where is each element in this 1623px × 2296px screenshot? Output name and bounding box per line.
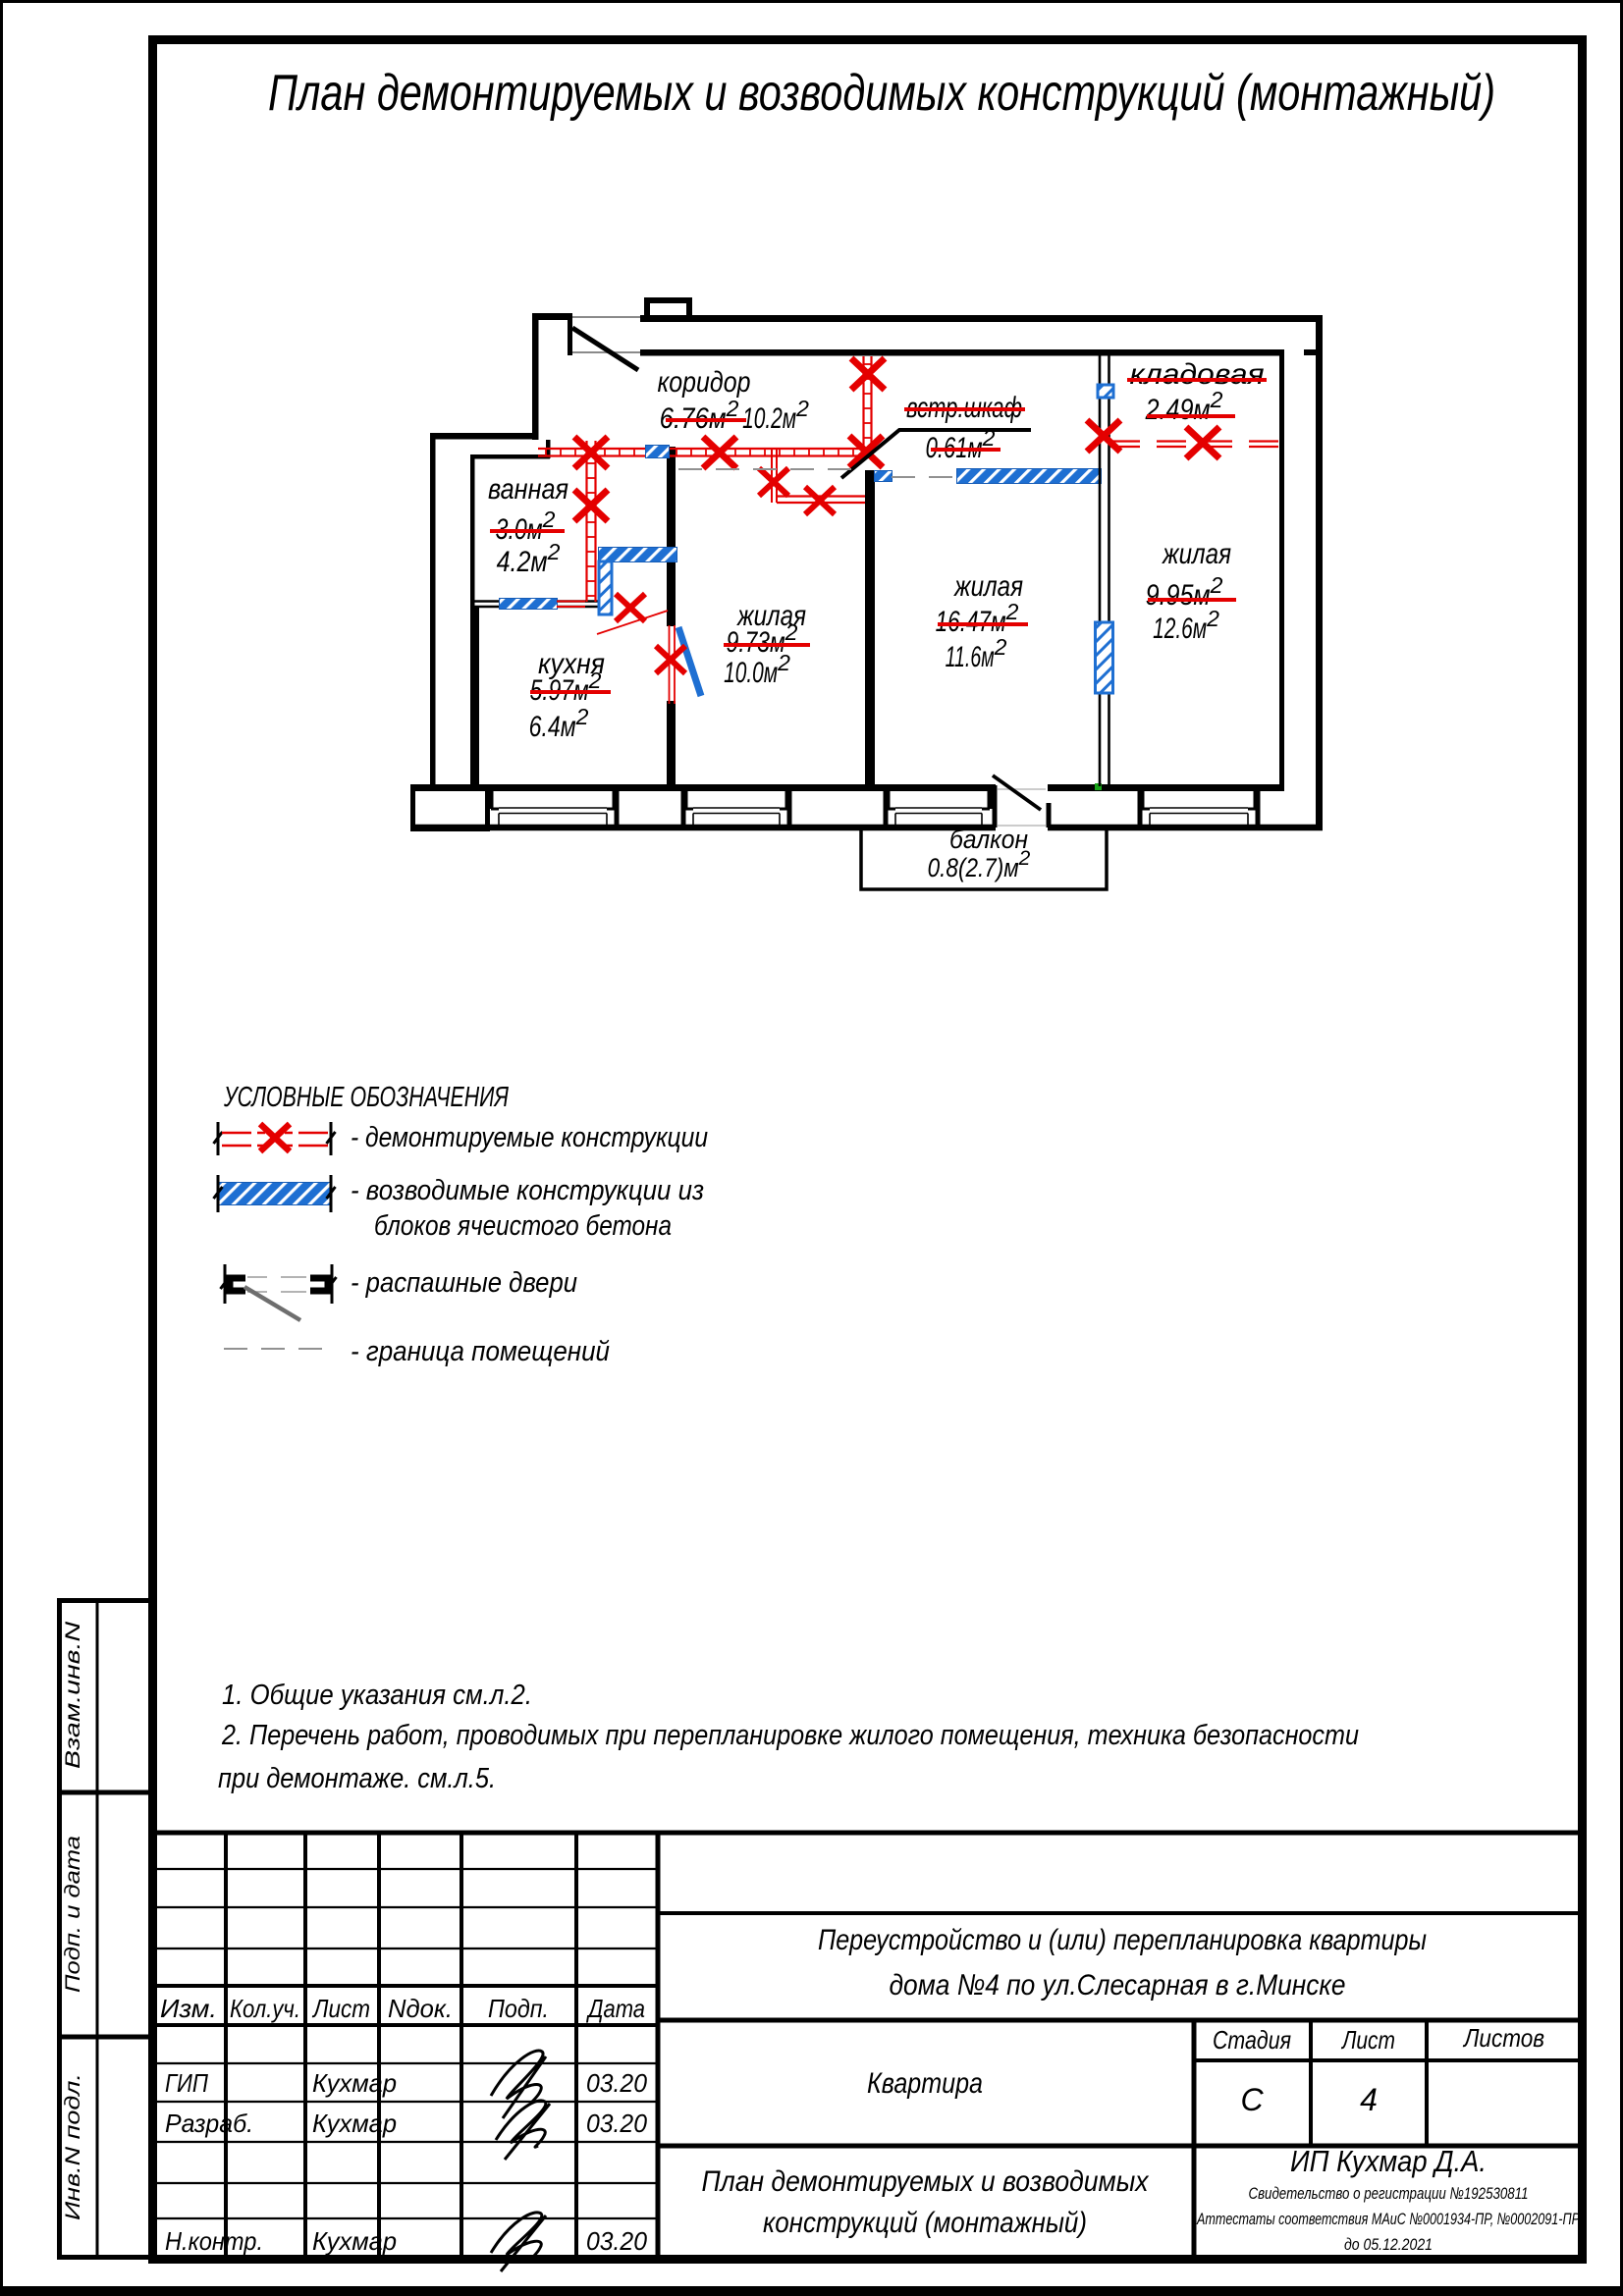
- svg-text:Nдок.: Nдок.: [388, 1994, 453, 2023]
- svg-text:03.20: 03.20: [586, 2109, 648, 2138]
- svg-text:Взам.инв.N: Взам.инв.N: [62, 1621, 84, 1769]
- svg-text:Дата: Дата: [585, 1994, 645, 2023]
- svg-text:План демонтируемых и возвод: План демонтируемых и возводимых конструк…: [268, 65, 1495, 122]
- svg-text:Разраб.: Разраб.: [165, 2109, 253, 2138]
- svg-text:- распашные двери: - распашные двери: [351, 1267, 577, 1299]
- svg-text:Кол.уч.: Кол.уч.: [230, 1994, 300, 2023]
- svg-text:2. Перечень работ, проводим: 2. Перечень работ, проводимых при перепл…: [221, 1720, 1359, 1751]
- svg-text:ГИП: ГИП: [165, 2068, 208, 2098]
- svg-text:Подп. и дата: Подп. и дата: [62, 1836, 84, 1993]
- svg-text:Кухмар: Кухмар: [312, 2068, 397, 2098]
- svg-text:Свидетельство о регистрации №1: Свидетельство о регистрации №192530811: [1249, 2184, 1529, 2203]
- svg-text:Подп.: Подп.: [488, 1994, 549, 2023]
- svg-text:ванная: ванная: [488, 473, 568, 506]
- svg-text:Переустройство и (или) пере: Переустройство и (или) перепланировка кв…: [818, 1924, 1427, 1956]
- svg-text:дома №4 по ул.Слесарная в: дома №4 по ул.Слесарная в г.Минске: [890, 1969, 1346, 2002]
- svg-text:0.8(2.7)м2: 0.8(2.7)м2: [928, 847, 1031, 882]
- svg-text:Листов: Листов: [1462, 2023, 1544, 2053]
- svg-text:03.20: 03.20: [586, 2068, 648, 2098]
- svg-text:конструкций (монтажный): конструкций (монтажный): [763, 2207, 1087, 2239]
- svg-text:Кухмар: Кухмар: [312, 2109, 397, 2138]
- svg-text:Кухмар: Кухмар: [312, 2226, 397, 2256]
- svg-text:Лист: Лист: [311, 1994, 370, 2023]
- svg-text:Аттестаты соответствия МАиС №: Аттестаты соответствия МАиС №0001934-ПР,…: [1196, 2210, 1580, 2228]
- svg-text:при демонтаже. см.л.5.: при демонтаже. см.л.5.: [218, 1763, 496, 1794]
- svg-text:- возводимые конструкции из: - возводимые конструкции из: [351, 1175, 704, 1206]
- svg-text:Изм.: Изм.: [160, 1994, 217, 2023]
- svg-text:С: С: [1240, 2082, 1264, 2117]
- svg-text:Инв.N подл.: Инв.N подл.: [62, 2073, 84, 2220]
- svg-text:балкон: балкон: [949, 825, 1028, 854]
- svg-text:Стадия: Стадия: [1213, 2025, 1291, 2055]
- svg-text:Н.контр.: Н.контр.: [165, 2226, 263, 2256]
- svg-text:Лист: Лист: [1340, 2025, 1395, 2055]
- svg-text:УСЛОВНЫЕ ОБОЗНАЧЕНИЯ: УСЛОВНЫЕ ОБОЗНАЧЕНИЯ: [223, 1082, 509, 1113]
- svg-text:План демонтируемых и возвод: План демонтируемых и возводимых: [702, 2165, 1150, 2198]
- svg-text:Квартира: Квартира: [867, 2067, 983, 2100]
- svg-text:1. Общие указания см.л.2.: 1. Общие указания см.л.2.: [222, 1680, 532, 1711]
- svg-text:коридор: коридор: [658, 366, 751, 399]
- svg-text:03.20: 03.20: [586, 2226, 648, 2256]
- svg-text:- граница помещений: - граница помещений: [351, 1336, 610, 1367]
- svg-text:4: 4: [1360, 2082, 1378, 2117]
- svg-text:ИП Кухмар Д.А.: ИП Кухмар Д.А.: [1290, 2144, 1487, 2178]
- svg-text:жилая: жилая: [1161, 538, 1231, 570]
- svg-text:- демонтируемые конструкции: - демонтируемые конструкции: [351, 1122, 708, 1153]
- svg-text:до 05.12.2021: до 05.12.2021: [1344, 2235, 1433, 2254]
- svg-text:блоков ячеистого бетона: блоков ячеистого бетона: [374, 1210, 672, 1242]
- svg-text:кладовая: кладовая: [1130, 358, 1265, 391]
